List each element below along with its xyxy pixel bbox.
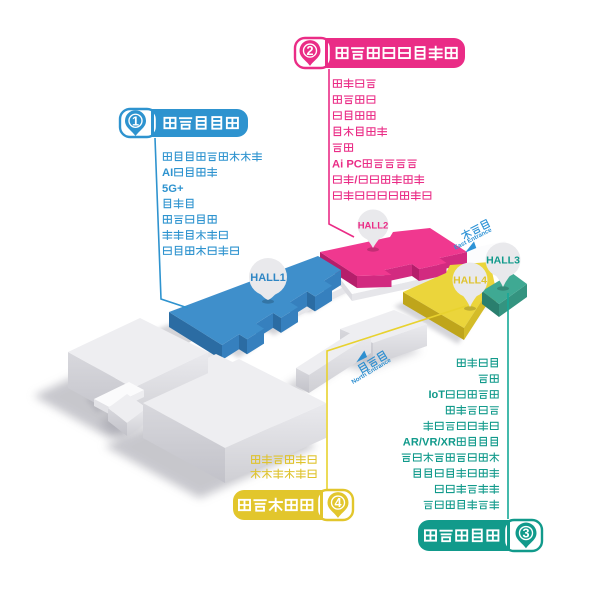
svg-text:1: 1 [132,114,139,128]
svg-text:HALL4: HALL4 [453,275,487,287]
svg-text:HALL1: HALL1 [250,272,285,284]
svg-text:5G+: 5G+ [162,183,184,195]
svg-text:4: 4 [334,496,341,510]
svg-text:IoT: IoT [429,389,446,401]
svg-text:/: / [354,174,357,186]
svg-text:AI: AI [162,167,173,179]
svg-text:Ai PC: Ai PC [332,158,362,170]
svg-text:3: 3 [522,527,529,541]
svg-text:HALL2: HALL2 [358,220,389,231]
svg-text:2: 2 [306,44,313,58]
svg-text:HALL3: HALL3 [486,255,520,267]
svg-text:AR/VR/XR: AR/VR/XR [403,437,456,449]
